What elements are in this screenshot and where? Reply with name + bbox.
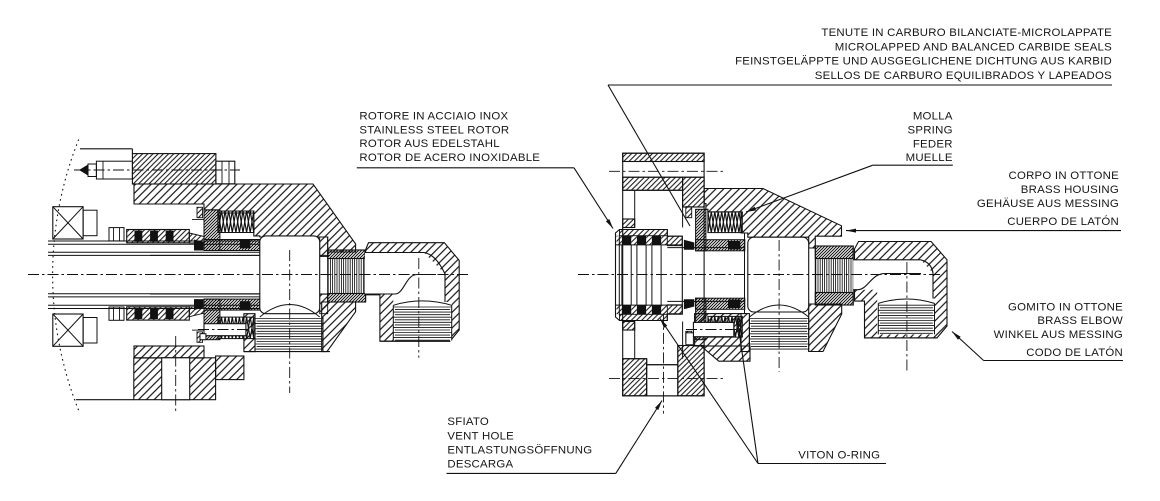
svg-text:MUELLE: MUELLE (906, 152, 953, 164)
svg-text:VITON O-RING: VITON O-RING (798, 449, 880, 461)
svg-text:GOMITO IN OTTONE: GOMITO IN OTTONE (1008, 301, 1123, 313)
svg-text:DESCARGA: DESCARGA (447, 459, 513, 471)
svg-text:ENTLASTUNGSÖFFNUNG: ENTLASTUNGSÖFFNUNG (447, 445, 592, 457)
svg-text:SFIATO: SFIATO (447, 416, 489, 428)
svg-text:FEINSTGELÄPPTE UND AUSGEGLICHE: FEINSTGELÄPPTE UND AUSGEGLICHENE DICHTUN… (735, 56, 1112, 68)
svg-text:ROTOR DE ACERO INOXIDABLE: ROTOR DE ACERO INOXIDABLE (359, 152, 540, 164)
svg-text:STAINLESS STEEL ROTOR: STAINLESS STEEL ROTOR (359, 124, 509, 136)
svg-text:GEHÄUSE AUS MESSING: GEHÄUSE AUS MESSING (977, 198, 1119, 210)
svg-text:FEDER: FEDER (913, 138, 953, 150)
svg-text:MICROLAPPED AND BALANCED CARBI: MICROLAPPED AND BALANCED CARBIDE SEALS (835, 41, 1112, 53)
svg-text:ROTORE IN ACCIAIO INOX: ROTORE IN ACCIAIO INOX (359, 111, 508, 123)
svg-text:MOLLA: MOLLA (913, 111, 953, 123)
svg-text:ROTOR AUS EDELSTAHL: ROTOR AUS EDELSTAHL (359, 138, 499, 150)
svg-text:WINKEL AUS MESSING: WINKEL AUS MESSING (994, 329, 1123, 341)
svg-text:SELLOS DE CARBURO EQUILIBRADOS: SELLOS DE CARBURO EQUILIBRADOS Y LAPEADO… (815, 70, 1112, 82)
svg-text:VENT HOLE: VENT HOLE (447, 430, 514, 442)
svg-text:TENUTE IN CARBURO BILANCIATE-M: TENUTE IN CARBURO BILANCIATE-MICROLAPPAT… (821, 27, 1112, 39)
svg-text:BRASS HOUSING: BRASS HOUSING (1021, 184, 1119, 196)
svg-text:BRASS ELBOW: BRASS ELBOW (1037, 315, 1123, 327)
svg-text:SPRING: SPRING (908, 124, 953, 136)
svg-text:CUERPO DE LATÓN: CUERPO DE LATÓN (1007, 215, 1119, 228)
svg-text:CORPO IN OTTONE: CORPO IN OTTONE (1009, 170, 1120, 182)
svg-text:CODO DE LATÓN: CODO DE LATÓN (1026, 346, 1123, 359)
